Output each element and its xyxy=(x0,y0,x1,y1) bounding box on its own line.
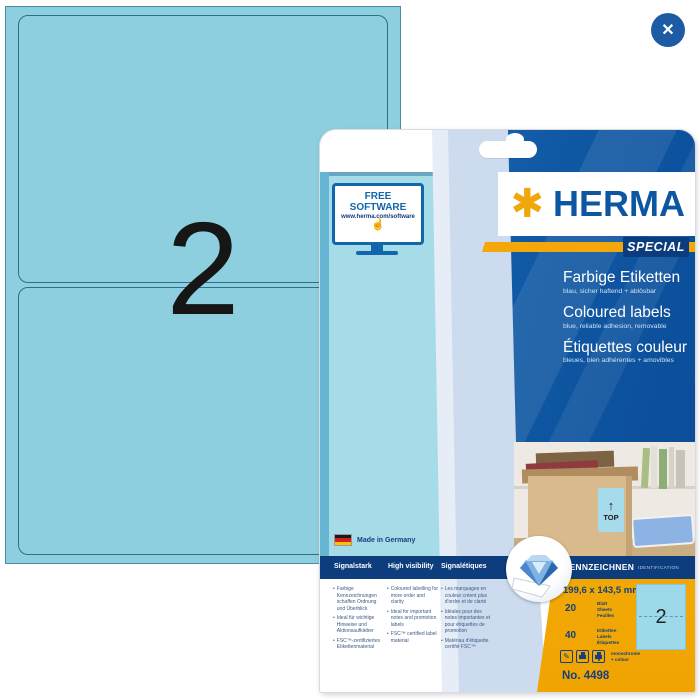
close-icon: ✕ xyxy=(661,20,674,40)
label-dimensions: 199,6 x 143,5 mm xyxy=(563,585,641,596)
title-en: Coloured labels xyxy=(563,304,693,322)
print-compatibility: ✎ monochrome + colour xyxy=(560,650,640,663)
free-software-title: FREE SOFTWARE xyxy=(335,191,421,213)
printer-icon xyxy=(576,650,589,663)
print-note: monochrome + colour xyxy=(611,651,640,663)
bullet-icon: • xyxy=(441,638,443,651)
sheet-count: 20 xyxy=(565,603,576,614)
bullet-icon: • xyxy=(333,638,335,651)
sheet-units: Blatt Sheets Feuilles xyxy=(597,601,614,619)
made-in-text: Made in Germany xyxy=(357,537,415,544)
free-software-badge: FREE SOFTWARE www.herma.com/software ☝ xyxy=(332,183,424,245)
subtitle-de: blau, sicher haftend + ablösbar xyxy=(563,288,693,295)
order-number: No. 4498 xyxy=(562,670,609,682)
bullet-icon: • xyxy=(333,615,335,635)
header-identification: IDENTIFICATION xyxy=(638,565,679,570)
tablet xyxy=(631,514,695,548)
close-button[interactable]: ✕ xyxy=(651,13,685,47)
bullet-text: FSC™-zertifiziertes Etikettenmaterial xyxy=(337,638,385,651)
bullet-text: Coloured labelling for more order and cl… xyxy=(391,586,439,606)
brand-band: ✱ HERMA xyxy=(498,172,695,236)
german-flag-icon xyxy=(334,534,352,546)
header-signalstark: Signalstark xyxy=(334,563,372,570)
bullets-en: •Coloured labelling for more order and c… xyxy=(387,586,439,647)
bullet-text: Ideal for important notes and promotion … xyxy=(391,609,439,629)
made-in-germany: Made in Germany xyxy=(334,534,415,546)
up-arrow-icon: ↑ xyxy=(608,499,615,512)
handwriting-icon: ✎ xyxy=(560,650,573,663)
product-package: ✱ HERMA SPECIAL Farbige Etiketten blau, … xyxy=(320,130,695,692)
bullet-text: FSC™ certified label material xyxy=(391,631,439,644)
book xyxy=(659,449,667,489)
header-high-visibility: High visibility xyxy=(388,563,434,570)
product-titles: Farbige Etiketten blau, sicher haftend +… xyxy=(563,269,693,373)
book xyxy=(669,447,674,489)
bullet-icon: • xyxy=(387,631,389,644)
brand-name: HERMA xyxy=(553,183,685,225)
cursor-hand-icon: ☝ xyxy=(335,220,421,231)
title-fr: Étiquettes couleur xyxy=(563,339,693,357)
monitor-base xyxy=(356,251,398,255)
header-kennzeichnen: KENNZEICHNEN xyxy=(563,562,634,572)
mini-label-preview: 2 xyxy=(637,585,685,649)
bullet-text: Ideal für wichtige Hinweise und Aktionsa… xyxy=(337,615,385,635)
bullet-icon: • xyxy=(441,586,443,606)
book xyxy=(676,450,685,488)
subtitle-en: blue, reliable adhesion, removable xyxy=(563,323,693,330)
euro-slot xyxy=(479,141,537,158)
book xyxy=(641,448,650,488)
bullet-text: Idéales pour des notes importantes et po… xyxy=(445,609,493,635)
bullet-text: Farbige Kennzeichnungen schaffen Ordnung… xyxy=(337,586,385,612)
bullet-text: Les marquages en couleur créent plus d'o… xyxy=(445,586,493,606)
special-badge: SPECIAL xyxy=(623,237,689,257)
title-de: Farbige Etiketten xyxy=(563,269,693,287)
product-viewer: 2 ✱ HERMA SPECIAL Farbige Etiketten blau… xyxy=(0,0,700,700)
top-sticker-text: TOP xyxy=(603,513,618,522)
inkjet-printer-icon xyxy=(592,650,605,663)
label-units: Etiketten Labels Étiquettes xyxy=(597,628,619,646)
bullet-icon: • xyxy=(387,609,389,629)
bullet-icon: • xyxy=(333,586,335,612)
mini-label-count: 2 xyxy=(655,606,666,629)
book xyxy=(651,446,657,488)
bullet-icon: • xyxy=(387,586,389,606)
label-count: 40 xyxy=(565,630,576,641)
bullet-icon: • xyxy=(441,609,443,635)
bullets-fr: •Les marquages en couleur créent plus d'… xyxy=(441,586,493,654)
top-sticker: ↑ TOP xyxy=(598,488,624,532)
header-signaletiques: Signalétiques xyxy=(441,563,487,570)
herma-star-icon: ✱ xyxy=(510,184,544,224)
bullet-text: Matériau d'étiquette certifié FSC™ xyxy=(445,638,493,651)
bullets-de: •Farbige Kennzeichnungen schaffen Ordnun… xyxy=(333,586,385,654)
subtitle-fr: bleues, bien adhérentes + amovibles xyxy=(563,357,693,364)
package-side-edge xyxy=(320,172,329,556)
mini-label-divider xyxy=(639,616,683,617)
